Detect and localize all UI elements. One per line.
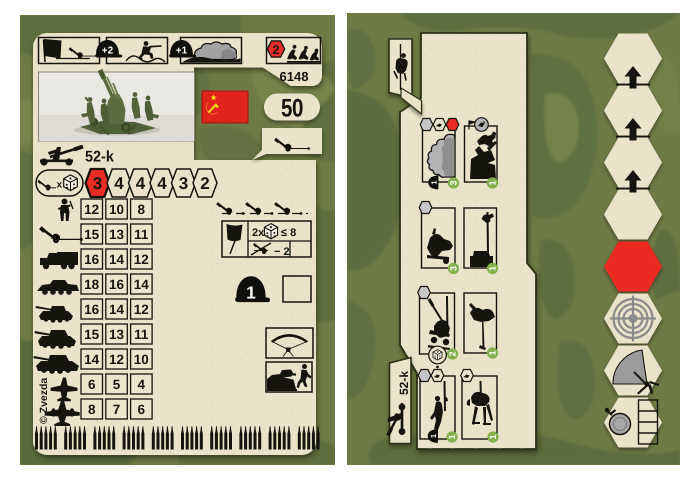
- svg-text:1: 1: [488, 434, 498, 439]
- svg-text:14: 14: [109, 302, 125, 317]
- svg-text:11: 11: [134, 327, 149, 342]
- svg-text:1: 1: [447, 434, 457, 439]
- svg-text:8: 8: [138, 202, 146, 217]
- svg-text:6: 6: [138, 402, 146, 417]
- svg-text:− 2: − 2: [274, 246, 290, 258]
- svg-text:8: 8: [88, 402, 96, 417]
- svg-text:52-k: 52-k: [397, 371, 411, 395]
- svg-text:11: 11: [134, 227, 149, 242]
- svg-text:12: 12: [109, 352, 124, 367]
- svg-text:4: 4: [138, 377, 146, 392]
- svg-text:4: 4: [136, 174, 146, 193]
- svg-text:≤ 8: ≤ 8: [281, 227, 296, 239]
- svg-text:16: 16: [84, 302, 100, 317]
- svg-text:12: 12: [84, 202, 99, 217]
- svg-text:15: 15: [84, 327, 100, 342]
- svg-text:2: 2: [448, 351, 458, 356]
- svg-text:52-k: 52-k: [85, 149, 114, 166]
- svg-text:1: 1: [488, 180, 498, 185]
- svg-text:10: 10: [134, 352, 149, 367]
- svg-text:12: 12: [134, 302, 149, 317]
- svg-text:2: 2: [200, 174, 209, 193]
- svg-text:5: 5: [113, 377, 121, 392]
- svg-text:© Zvezda: © Zvezda: [38, 378, 50, 424]
- svg-text:7: 7: [113, 402, 121, 417]
- svg-text:6148: 6148: [280, 69, 309, 84]
- svg-text:3: 3: [449, 180, 459, 185]
- svg-text:4: 4: [157, 174, 167, 193]
- svg-text:13: 13: [109, 227, 125, 242]
- svg-text:1: 1: [246, 283, 256, 303]
- svg-text:6: 6: [88, 377, 96, 392]
- svg-text:15: 15: [84, 227, 100, 242]
- svg-text:1: 1: [488, 350, 498, 355]
- svg-text:13: 13: [109, 327, 125, 342]
- svg-text:4: 4: [114, 174, 124, 193]
- svg-text:50: 50: [281, 94, 303, 123]
- svg-text:10: 10: [109, 202, 124, 217]
- svg-text:1: 1: [488, 266, 498, 271]
- svg-text:12: 12: [134, 252, 149, 267]
- svg-text:3: 3: [179, 174, 188, 193]
- svg-text:1: 1: [429, 434, 438, 438]
- svg-text:1: 1: [430, 180, 439, 184]
- svg-text:14: 14: [134, 277, 150, 292]
- svg-text:+1: +1: [176, 46, 188, 57]
- svg-text:16: 16: [84, 252, 100, 267]
- svg-text:x: x: [57, 180, 63, 191]
- svg-text:3: 3: [93, 174, 102, 193]
- svg-text:16: 16: [109, 277, 125, 292]
- svg-text:14: 14: [84, 352, 100, 367]
- svg-text:+2: +2: [102, 46, 114, 57]
- svg-text:14: 14: [109, 252, 125, 267]
- svg-text:18: 18: [84, 277, 100, 292]
- svg-text:3: 3: [449, 266, 459, 271]
- svg-text:2: 2: [273, 43, 280, 57]
- svg-text:2x: 2x: [252, 227, 265, 239]
